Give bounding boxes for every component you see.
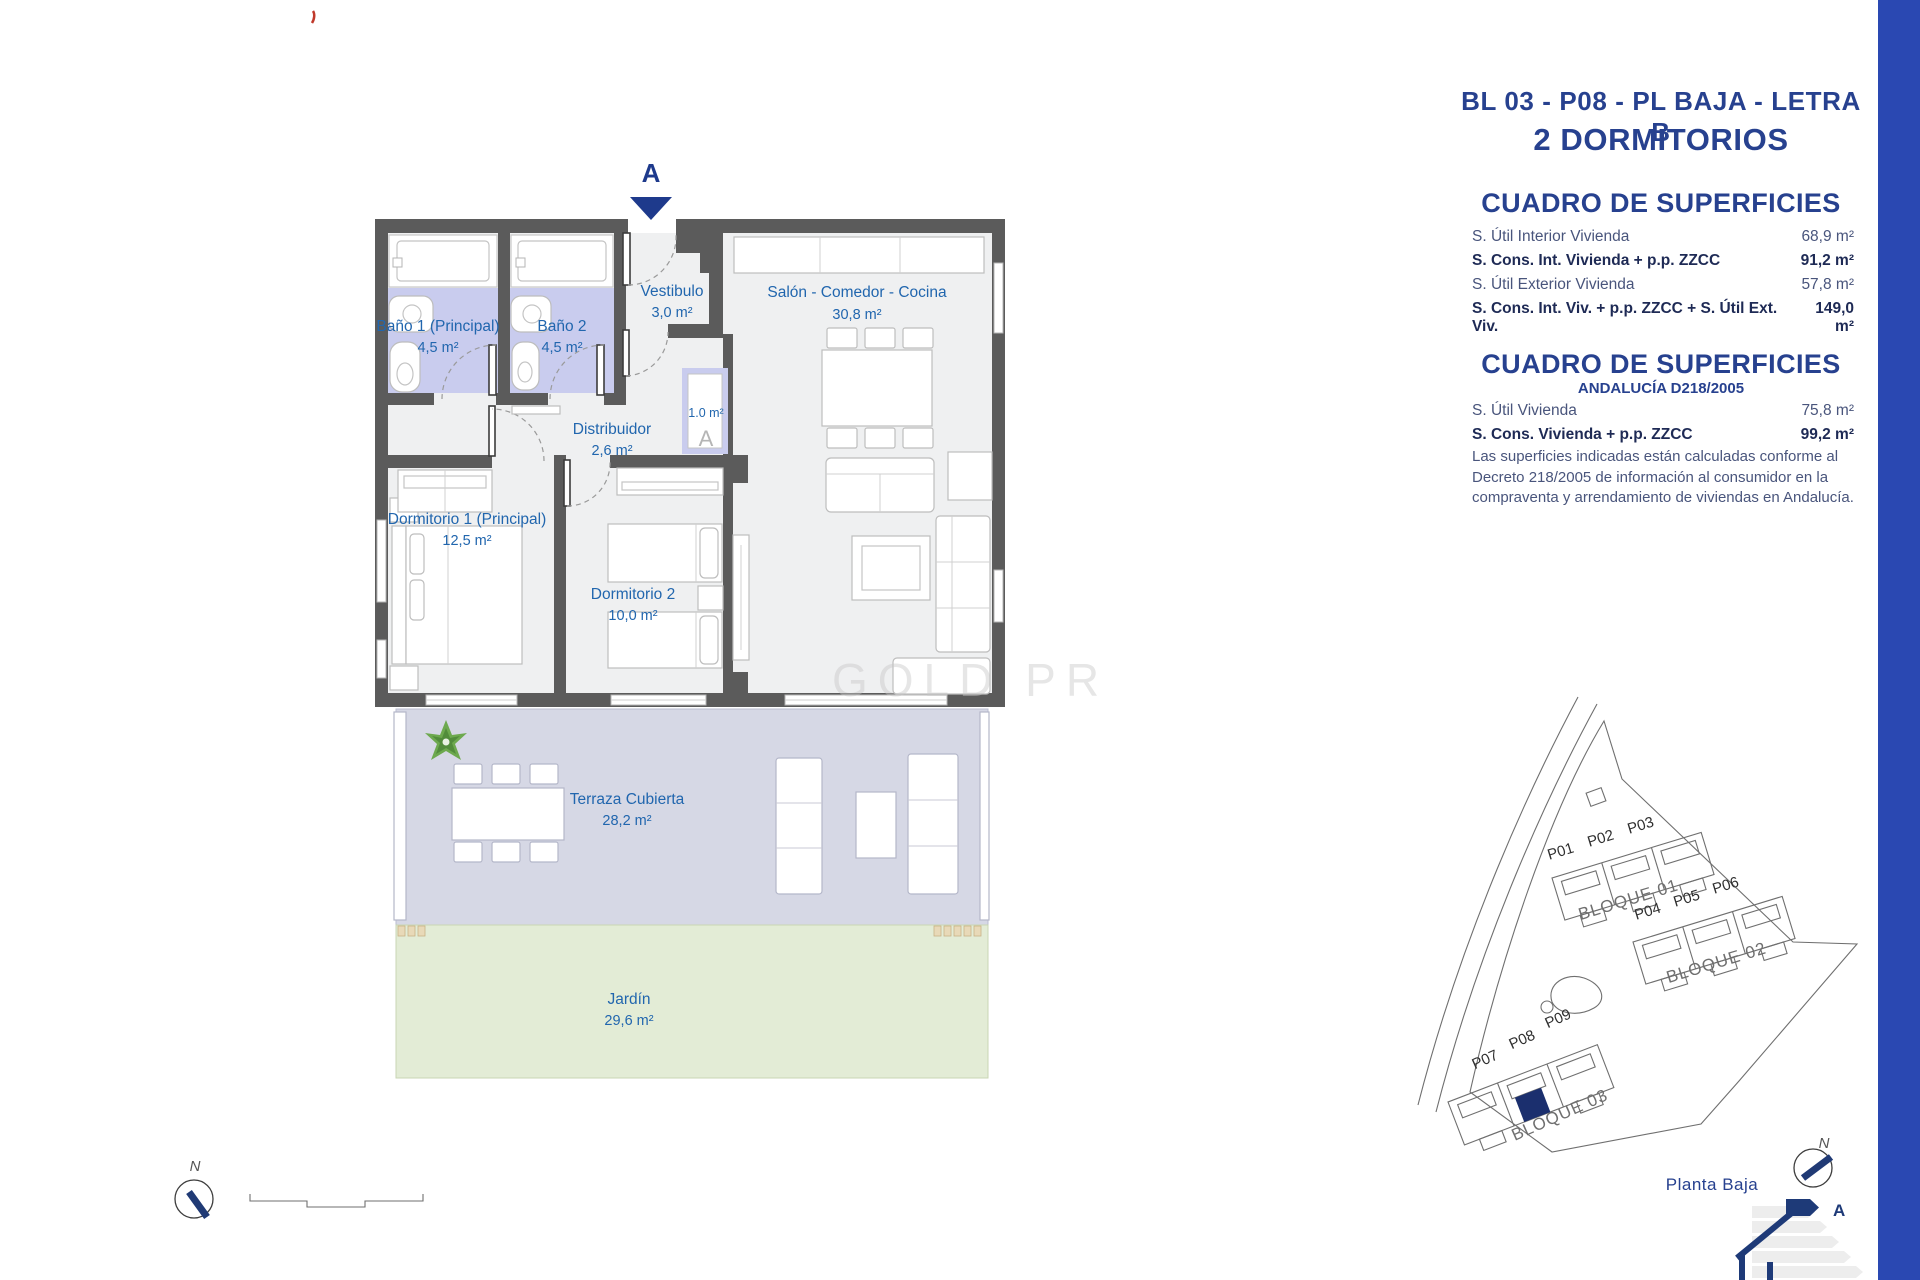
table-row: S. Útil Exterior Vivienda 57,8 m² (1472, 276, 1854, 294)
row-value: 99,2 m² (1801, 426, 1854, 444)
room-label: Distribuidor (573, 421, 651, 438)
room-area: 10,0 m² (608, 608, 657, 624)
kitchen-counter (734, 237, 984, 273)
unit-label: P08 (1507, 1027, 1538, 1053)
row-label: S. Útil Interior Vivienda (1472, 228, 1629, 246)
garden-area (396, 925, 988, 1078)
floorplan-sheet: 1.0 m² A (0, 0, 1920, 1280)
vestibule-door-leaf (623, 330, 629, 376)
watermark: GOLD PR (832, 654, 1109, 706)
row-label: S. Cons. Int. Vivienda + p.p. ZZCC (1472, 252, 1720, 270)
room-area: 12,5 m² (442, 533, 491, 549)
room-area: 4,5 m² (417, 340, 458, 356)
room-label: Dormitorio 2 (591, 586, 675, 603)
table-row: S. Útil Interior Vivienda 68,9 m² (1472, 228, 1854, 246)
unit-label: P09 (1543, 1006, 1574, 1032)
bath2-door-leaf (597, 345, 604, 395)
closet-shaft: 1.0 m² A (682, 368, 728, 454)
entrance-door-leaf (623, 233, 630, 285)
andalucia-table-title: CUADRO DE SUPERFICIES (1460, 349, 1862, 380)
floor-plan: 1.0 m² A (375, 158, 1109, 1078)
row-label: S. Cons. Int. Viv. + p.p. ZZCC + S. Útil… (1472, 300, 1794, 336)
north-label: N (1819, 1135, 1830, 1152)
unit-label: P06 (1710, 874, 1741, 898)
dining-set (822, 328, 933, 448)
room-label: Jardín (607, 991, 650, 1008)
energy-letter: A (1833, 1201, 1845, 1220)
table-row: S. Útil Vivienda 75,8 m² (1472, 402, 1854, 420)
site-plan: P01 P02 P03 BLOQUE 01 P04 P05 P06 BLOQUE… (1418, 697, 1863, 1280)
info-panel: BL 03 - P08 - PL BAJA - LETRA B 2 DORMIT… (1460, 0, 1862, 600)
bedrooms-subtitle: 2 DORMITORIOS (1460, 122, 1862, 158)
room-area: 29,6 m² (604, 1013, 653, 1029)
room-area: 4,5 m² (541, 340, 582, 356)
room-label: Vestibulo (641, 283, 704, 300)
section-marker-letter: A (642, 158, 661, 188)
room-label: Baño 1 (Principal) (376, 318, 499, 335)
room-area: 30,8 m² (832, 307, 881, 323)
energy-arrow (1786, 1199, 1819, 1216)
row-label: S. Útil Vivienda (1472, 402, 1577, 420)
table-row: S. Cons. Int. Vivienda + p.p. ZZCC 91,2 … (1472, 252, 1854, 270)
table-row: S. Cons. Vivienda + p.p. ZZCC 99,2 m² (1472, 426, 1854, 444)
room-label: Dormitorio 1 (Principal) (388, 511, 546, 528)
row-value: 91,2 m² (1801, 252, 1854, 270)
room-area: 2,6 m² (591, 443, 632, 459)
closet-area-label: 1.0 m² (688, 406, 723, 420)
bedroom1-door-leaf (489, 406, 495, 456)
scale-bar (250, 1194, 423, 1207)
closet-section-letter: A (699, 426, 714, 451)
unit-label: P03 (1625, 814, 1656, 838)
row-value: 149,0 m² (1794, 300, 1854, 336)
site-boundary (1470, 721, 1857, 1152)
block-label: BLOQUE 01 (1576, 876, 1681, 924)
site-caption: Planta Baja (1666, 1175, 1758, 1194)
row-label: S. Cons. Vivienda + p.p. ZZCC (1472, 426, 1693, 444)
terrace-column-right (980, 712, 989, 920)
row-label: S. Útil Exterior Vivienda (1472, 276, 1635, 294)
table-row: S. Cons. Int. Viv. + p.p. ZZCC + S. Útil… (1472, 300, 1854, 336)
room-area: 28,2 m² (602, 813, 651, 829)
north-label: N (190, 1158, 201, 1175)
terrace-column-left (394, 712, 406, 920)
unit-label: P01 (1545, 840, 1576, 864)
andalucia-table-subtitle: ANDALUCÍA D218/2005 (1460, 380, 1862, 397)
row-value: 75,8 m² (1801, 402, 1854, 420)
room-label: Baño 2 (537, 318, 586, 335)
blue-side-stripe (1878, 0, 1920, 1280)
surfaces-table-title: CUADRO DE SUPERFICIES (1460, 188, 1862, 219)
compass-left: N (175, 1158, 213, 1218)
room-label: Salón - Comedor - Cocina (767, 284, 947, 301)
bath1-door-leaf (489, 345, 496, 395)
unit-label: P02 (1585, 827, 1616, 851)
red-mark (312, 11, 314, 23)
legal-note: Las superficies indicadas están calculad… (1472, 447, 1854, 509)
room-label: Terraza Cubierta (570, 791, 685, 808)
bedroom2-door-leaf (564, 460, 570, 506)
row-value: 68,9 m² (1801, 228, 1854, 246)
section-marker-triangle (630, 197, 672, 220)
energy-rating-icon: A (1737, 1199, 1863, 1280)
compass-right: N (1794, 1135, 1832, 1187)
room-area: 3,0 m² (651, 305, 692, 321)
unit-label: P07 (1470, 1047, 1501, 1073)
row-value: 57,8 m² (1801, 276, 1854, 294)
